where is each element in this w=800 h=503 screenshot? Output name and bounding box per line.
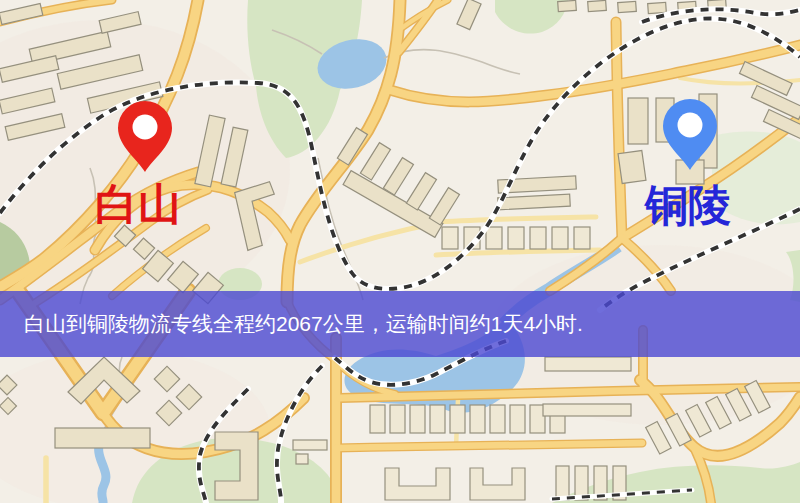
map-view[interactable]: 白山到铜陵物流专线全程约2067公里，运输时间约1天4小时. 白山 铜陵 [0,0,800,503]
origin-label: 白山 [95,180,181,228]
destination-pin-hole [678,113,703,138]
destination-label: 铜陵 [643,181,731,229]
info-banner-text: 白山到铜陵物流专线全程约2067公里，运输时间约1天4小时. [24,312,583,335]
info-banner: 白山到铜陵物流专线全程约2067公里，运输时间约1天4小时. [0,291,800,357]
origin-pin-hole [133,115,158,140]
map-canvas: 白山到铜陵物流专线全程约2067公里，运输时间约1天4小时. 白山 铜陵 [0,0,800,503]
